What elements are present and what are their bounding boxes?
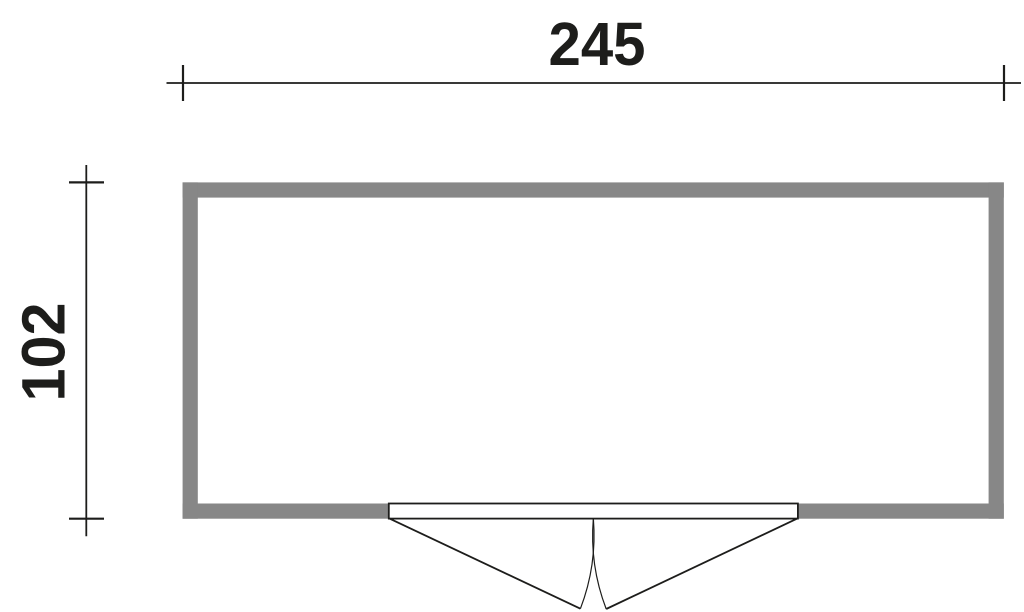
svg-text:245: 245 (549, 10, 646, 78)
svg-text:102: 102 (10, 303, 78, 402)
